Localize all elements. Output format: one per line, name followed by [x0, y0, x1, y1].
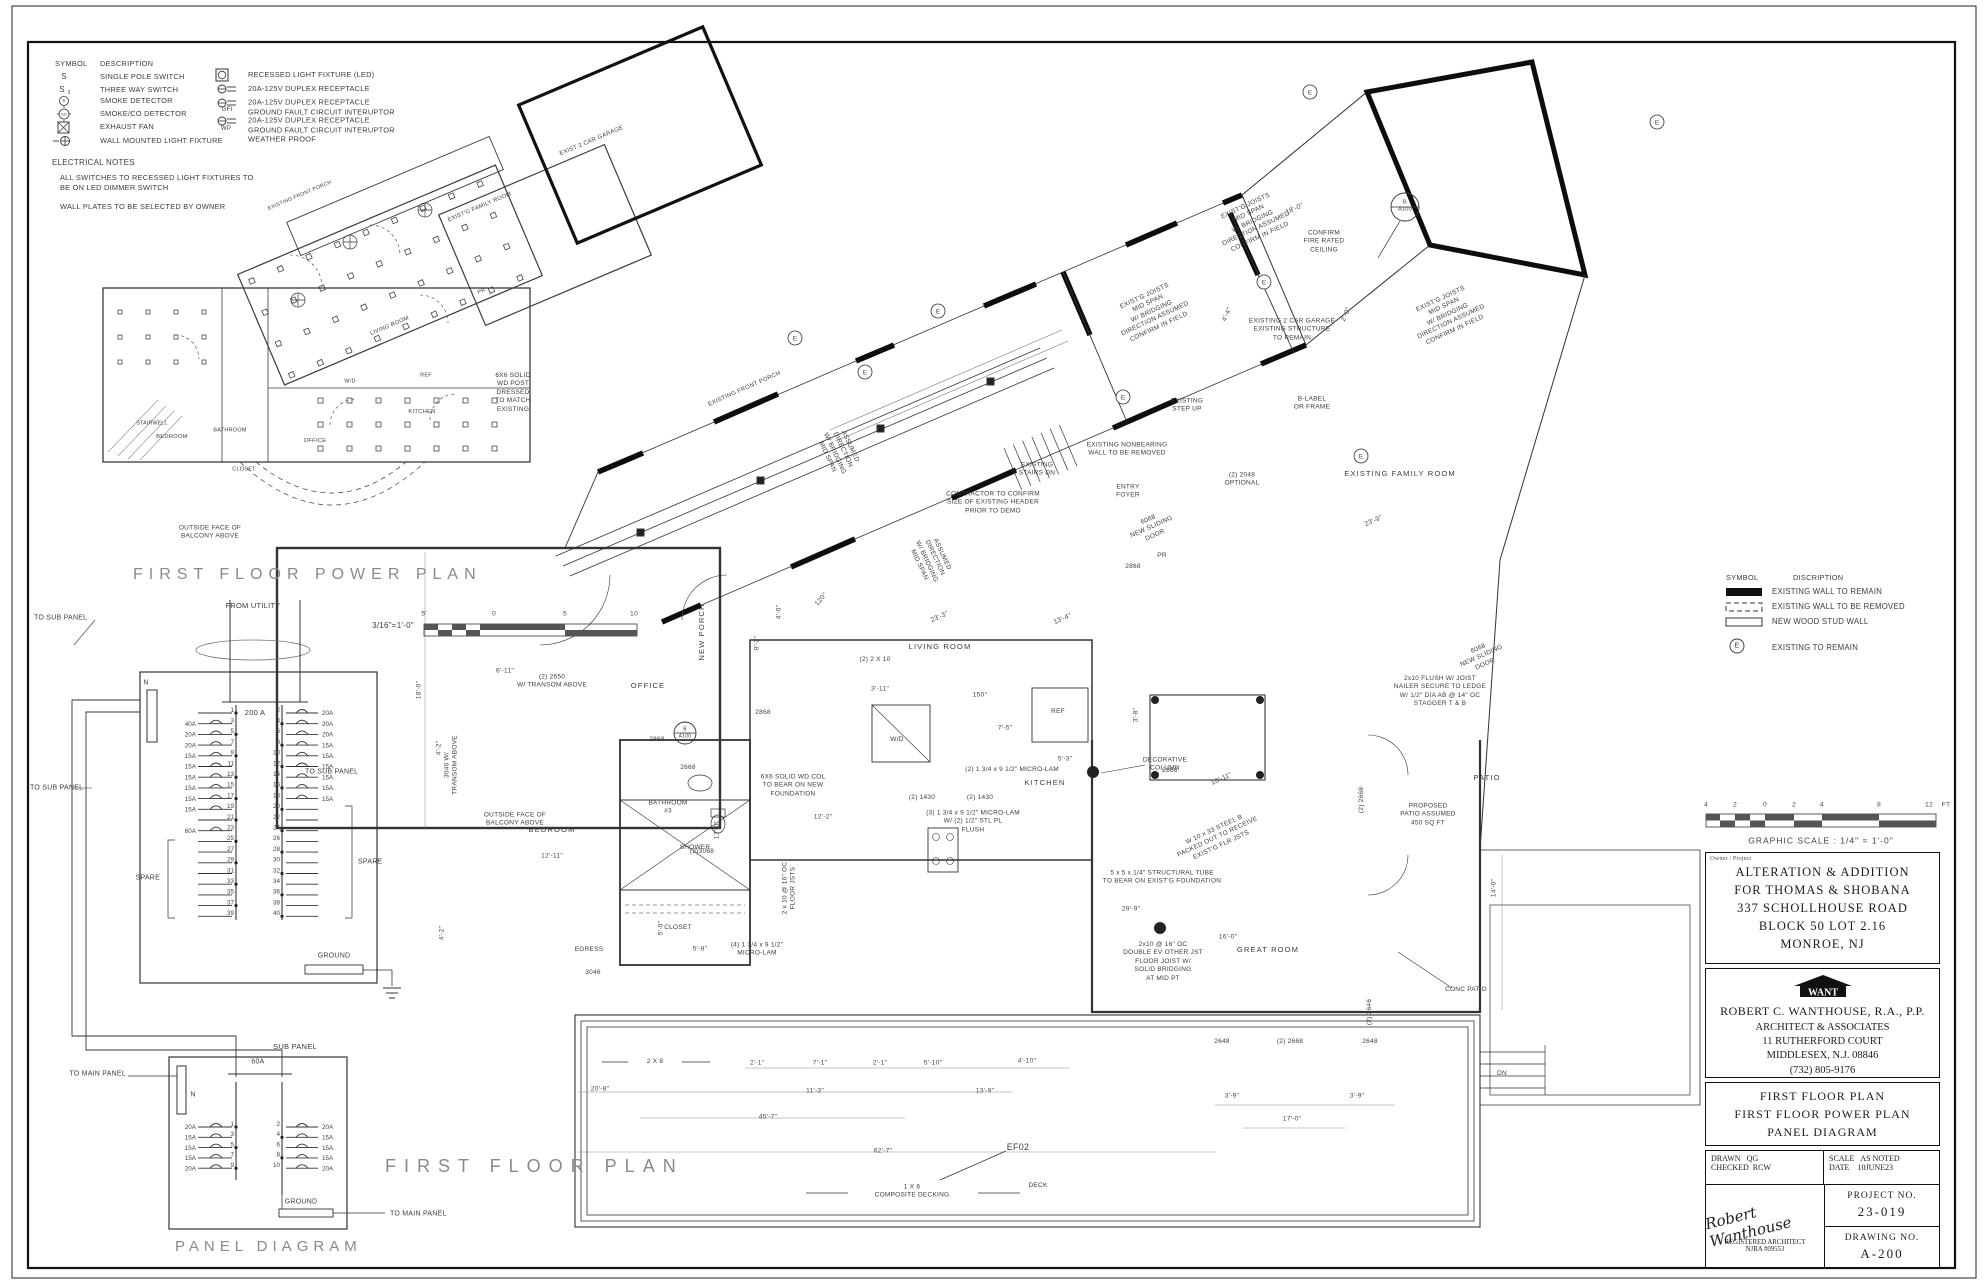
scale-tick: 5' [421, 611, 426, 620]
svg-text:15A: 15A [185, 753, 197, 760]
svg-text:4: 4 [276, 718, 280, 725]
note-label: 2x10 FLUSH W/ JOIST NAILER SECURE TO LED… [1394, 675, 1486, 709]
svg-text:17: 17 [227, 792, 235, 799]
gscale-tick: 0 [1763, 802, 1767, 811]
note-label: (3) 1 3/4 x 9 1/2" MICRO-LAM W/ (2) 1/2"… [926, 809, 1020, 834]
room-label: DECK [1028, 1182, 1047, 1190]
to-sub-panel-label: TO SUB PANEL [34, 613, 87, 622]
svg-text:39: 39 [227, 910, 235, 917]
svg-text:10: 10 [273, 1162, 281, 1169]
gscale-unit: FT [1942, 802, 1951, 811]
legend-item: WALL MOUNTED LIGHT FIXTURE [100, 136, 223, 146]
architect-address: ARCHITECT & ASSOCIATES 11 RUTHERFORD COU… [1706, 1021, 1939, 1078]
gscale-tick: 2 [1733, 802, 1737, 811]
svg-text:20A: 20A [322, 732, 334, 739]
switch-symbol: S [61, 72, 67, 82]
note-label: (2) 2048 OPTIONAL [1225, 472, 1260, 489]
svg-text:8: 8 [276, 1152, 280, 1159]
architect-logo-icon: WANT [1786, 973, 1860, 999]
sub-panel-label: SUB PANEL [273, 1042, 317, 1052]
room-label: GREAT ROOM [1237, 945, 1299, 955]
svg-text:21: 21 [227, 814, 235, 821]
note-label: EF02 [1007, 1142, 1030, 1154]
room-label: CLOSET [232, 466, 256, 473]
date-value: 10JUNE23 [1857, 1163, 1893, 1172]
neutral-label: N [190, 1090, 195, 1099]
svg-text:15A: 15A [185, 764, 197, 771]
wp-label: WP [221, 126, 231, 134]
tag-label: 2868 [755, 709, 770, 717]
svg-text:30: 30 [273, 857, 281, 864]
architect-name: ROBERT C. WANTHOUSE, R.A., P.P. [1706, 1004, 1939, 1019]
tag-label: (2)3068 [690, 848, 714, 856]
existing-symbol: E [1735, 641, 1740, 650]
note-label: 2 x 10 @ 16" OC FLOOR JSTS [782, 862, 799, 915]
dim-label: 4'-10" [1018, 1058, 1037, 1067]
electrical-notes-body: ALL SWITCHES TO RECESSED LIGHT FIXTURES … [60, 173, 254, 212]
svg-text:4: 4 [276, 1131, 280, 1138]
svg-text:38: 38 [273, 899, 281, 906]
svg-text:14: 14 [273, 771, 281, 778]
svg-text:20A: 20A [322, 721, 334, 728]
svg-text:19: 19 [227, 803, 235, 810]
dim-label: 2'-1" [873, 1060, 888, 1069]
power-plan-title: FIRST FLOOR POWER PLAN [133, 566, 482, 584]
dim-label: 150° [973, 692, 988, 701]
legend-header-description: DESCRIPTION [100, 59, 153, 69]
smoke-co-detector-symbol: SD [61, 111, 67, 116]
svg-text:15A: 15A [185, 807, 197, 814]
dim-label: 5'-10" [924, 1060, 943, 1069]
to-main-panel-label: TO MAIN PANEL [390, 1209, 447, 1218]
note-label: OUTSIDE FACE OF BALCONY ABOVE [179, 525, 241, 542]
svg-text:20A: 20A [322, 710, 334, 717]
wall-legend-header-desc: DISCRIPTION [1793, 573, 1843, 583]
dim-label: 7'-1" [813, 1060, 828, 1069]
wall-legend-item: EXISTING WALL TO REMAIN [1772, 587, 1882, 597]
scale-value: AS NOTED [1860, 1154, 1899, 1163]
room-label: STAIRWELL [136, 421, 167, 428]
legend-item: RECESSED LIGHT FIXTURE (LED) [248, 70, 374, 80]
drawing-sheet: 20A1240A20A3420A20A5620A15A7815A15A91015… [0, 0, 1988, 1285]
dim-label: 7'-5" [998, 725, 1013, 734]
svg-text:3: 3 [230, 718, 234, 725]
note-label: B-LABEL OR FRAME [1294, 396, 1330, 413]
drawn-label: DRAWN [1711, 1154, 1741, 1163]
scale-tick: 5 [563, 611, 567, 620]
svg-text:8: 8 [276, 739, 280, 746]
dim-label: 3'-8" [1133, 708, 1142, 723]
svg-text:13: 13 [227, 771, 235, 778]
room-label: CLOSET [664, 924, 692, 932]
note-label: EXISTING STEP UP [1171, 398, 1203, 415]
svg-text:20A: 20A [185, 742, 197, 749]
room-label: NEW PORCH [697, 603, 707, 660]
svg-text:40: 40 [273, 910, 281, 917]
svg-text:E: E [1655, 119, 1659, 126]
drawing-no-value: A-200 [1860, 1246, 1903, 1262]
to-sub-panel-label: TO SUB PANEL [30, 783, 83, 792]
checked-value: RCW [1753, 1163, 1771, 1172]
svg-text:18: 18 [273, 792, 281, 799]
room-label: BEDROOM [156, 434, 188, 442]
dim-label: 3'-11" [871, 686, 889, 695]
scale-tick: 10 [630, 611, 638, 620]
tag-label: (2) 1430 [909, 794, 935, 802]
tag-label: 2668 [680, 764, 695, 772]
svg-text:15A: 15A [322, 742, 334, 749]
svg-text:15A: 15A [322, 1135, 334, 1142]
svg-text:15A: 15A [322, 1145, 334, 1152]
svg-text:31: 31 [227, 867, 235, 874]
legend-item: 20A-125V DUPLEX RECEPTACLE [248, 84, 370, 94]
svg-text:20A: 20A [185, 732, 197, 739]
date-label: DATE [1829, 1163, 1849, 1172]
svg-text:20A: 20A [322, 1165, 334, 1172]
svg-text:9: 9 [230, 750, 234, 757]
svg-text:1: 1 [230, 1121, 234, 1128]
svg-text:32: 32 [273, 867, 281, 874]
svg-text:7: 7 [230, 739, 234, 746]
dim-label: 16'-0" [1219, 934, 1238, 943]
note-label: OUTSIDE FACE OF BALCONY ABOVE [484, 812, 546, 829]
svg-text:15A: 15A [322, 785, 334, 792]
dim-label: 3'-9" [1350, 1093, 1365, 1102]
svg-text:29: 29 [227, 857, 235, 864]
titleblock-architect: WANT ROBERT C. WANTHOUSE, R.A., P.P. ARC… [1705, 968, 1940, 1078]
gscale-tick: 12 [1925, 802, 1933, 811]
tag-label: 3046 W/ TRANSOM ABOVE [444, 735, 461, 795]
wall-legend-item: EXISTING TO REMAIN [1772, 643, 1858, 653]
project-no-value: 23-019 [1858, 1204, 1907, 1220]
svg-text:6: 6 [276, 728, 280, 735]
svg-text:34: 34 [273, 878, 281, 885]
titleblock-sheet-title: FIRST FLOOR PLAN FIRST FLOOR POWER PLAN … [1705, 1082, 1940, 1146]
room-label: REF [420, 372, 432, 379]
note-label: CONC PATIO [1445, 986, 1487, 994]
svg-text:WANT: WANT [1807, 988, 1837, 999]
dim-label: 5'-0" [658, 921, 667, 936]
titleblock-owner: Owner / Project ALTERATION & ADDITION FO… [1705, 852, 1940, 964]
panel-diagram-title: PANEL DIAGRAM [175, 1238, 362, 1255]
sub-breaker-label: 60A [251, 1057, 264, 1066]
svg-text:6: 6 [276, 1141, 280, 1148]
tag-label: 2868 [1125, 563, 1140, 571]
scale-tick: 0 [492, 611, 496, 620]
room-label: BATHROOM [213, 427, 246, 434]
svg-text:35: 35 [227, 889, 235, 896]
callout-label: B A100 [679, 727, 692, 740]
room-label: PATIO [1473, 773, 1500, 783]
svg-text:20A: 20A [185, 1165, 197, 1172]
three-way-switch-symbol: S [59, 85, 65, 95]
svg-text:5: 5 [230, 1141, 234, 1148]
tag-label: (2) 2668 [1358, 787, 1366, 813]
electrical-notes-title: ELECTRICAL NOTES [52, 158, 135, 168]
note-label: CONTRACTOR TO CONFIRM SIZE OF EXISTING H… [946, 490, 1040, 515]
legend-item: 20A-125V DUPLEX RECEPTACLE GROUND FAULT … [248, 97, 395, 116]
svg-text:15A: 15A [322, 1155, 334, 1162]
note-label: (2) 1 3/4 x 9 1/2" MICRO-LAM [965, 766, 1059, 774]
tag-label: 2648 [1214, 1038, 1229, 1046]
svg-text:E: E [1121, 394, 1125, 401]
tag-label: 3046 [585, 969, 600, 977]
legend-item: THREE WAY SWITCH [100, 85, 178, 95]
spare-label: SPARE [358, 857, 382, 866]
legend-item: 20A-125V DUPLEX RECEPTACLE GROUND FAULT … [248, 116, 395, 145]
room-label: EXISTING FAMILY ROOM [1344, 469, 1456, 479]
svg-text:20: 20 [273, 803, 281, 810]
drawn-value: QG [1747, 1154, 1759, 1163]
callout-label: B A100 [1398, 200, 1412, 215]
svg-text:E: E [793, 335, 797, 342]
svg-text:40A: 40A [185, 721, 197, 728]
dim-label: 18'-0" [416, 681, 425, 700]
svg-text:27: 27 [227, 846, 235, 853]
legend-item: EXHAUST FAN [100, 122, 154, 132]
from-utility-label: FROM UTILITY [225, 601, 280, 611]
gscale-tick: 8 [1877, 802, 1881, 811]
floor-plan-title: FIRST FLOOR PLAN [385, 1156, 684, 1177]
gscale-label: GRAPHIC SCALE : 1/4" = 1'-0" [1748, 835, 1894, 846]
note-label: 1 X 6 COMPOSITE DECKING [875, 1184, 950, 1201]
note-label: 2x10 @ 16" OC DOUBLE EV OTHER JST FLOOR … [1123, 941, 1203, 983]
gscale-tick: 2 [1792, 802, 1796, 811]
svg-text:15A: 15A [185, 1145, 197, 1152]
room-label: KITCHEN [1024, 778, 1065, 788]
svg-text:E: E [1262, 279, 1266, 286]
note-label: PROPOSED PATIO ASSUMED 450 SQ FT [1400, 802, 1455, 827]
dim-label: 5'-3" [1058, 756, 1073, 765]
dim-label: 17'-0" [1283, 1116, 1302, 1125]
project-info: ALTERATION & ADDITION FOR THOMAS & SHOBA… [1706, 853, 1939, 963]
svg-text:20A: 20A [185, 1124, 197, 1131]
svg-text:28: 28 [273, 846, 281, 853]
svg-text:26: 26 [273, 835, 281, 842]
svg-text:20A: 20A [322, 1124, 334, 1131]
svg-text:7: 7 [230, 1152, 234, 1159]
dim-label: 17'-0" [714, 821, 723, 840]
tag-label: 2868 [1162, 767, 1177, 775]
svg-text:12: 12 [273, 760, 281, 767]
sheet-title: FIRST FLOOR PLAN FIRST FLOOR POWER PLAN … [1706, 1083, 1939, 1145]
svg-text:15A: 15A [185, 1135, 197, 1142]
room-label: W/D [344, 378, 355, 385]
svg-text:15A: 15A [322, 796, 334, 803]
note-label: (2) 2 X 10 [859, 656, 890, 664]
svg-text:5: 5 [230, 728, 234, 735]
note-label: 5 x 5 x 1/4" STRUCTURAL TUBE TO BEAR ON … [1103, 870, 1221, 887]
drawing-no-label: DRAWING NO. [1845, 1233, 1920, 1243]
svg-text:15A: 15A [322, 753, 334, 760]
dim-label: 12'-11" [541, 853, 563, 862]
owner-project-label: Owner / Project [1710, 855, 1751, 862]
legend-item: SMOKE DETECTOR [100, 96, 173, 106]
ground-label: GROUND [318, 951, 351, 960]
svg-text:1: 1 [230, 707, 234, 714]
wall-legend-item: NEW WOOD STUD WALL [1772, 617, 1868, 627]
legend-item: SINGLE POLE SWITCH [100, 72, 185, 82]
svg-text:16: 16 [273, 782, 281, 789]
svg-text:E: E [936, 308, 940, 315]
dim-label: 2'-1" [750, 1060, 765, 1069]
svg-text:2: 2 [276, 1121, 280, 1128]
gfi-label: GFI [222, 107, 233, 115]
dim-label: 62'-7" [874, 1148, 893, 1157]
svg-text:60A: 60A [185, 828, 197, 835]
dim-label: 8'-2" [754, 636, 763, 651]
gscale-tick: 4 [1820, 802, 1824, 811]
svg-text:15A: 15A [185, 796, 197, 803]
tag-label: (2) 2668 [1277, 1038, 1303, 1046]
dim-label: 6'-11" [496, 668, 514, 677]
svg-text:2: 2 [276, 707, 280, 714]
tag-label: 2648 [1362, 1038, 1377, 1046]
svg-text:15A: 15A [185, 785, 197, 792]
svg-text:36: 36 [273, 889, 281, 896]
dim-label: 3'-9" [1225, 1093, 1240, 1102]
three-way-switch-sub: 3 [67, 90, 70, 97]
tag-label: 2868 [649, 736, 664, 744]
gscale-tick: 4 [1704, 802, 1708, 811]
room-label: EXISTING 2 CAR GARAGE EXISTING STRUCTURE… [1249, 317, 1335, 342]
note-label: (4) 1 3/4 x 9 1/2" MICRO-LAM [731, 942, 783, 959]
tag-label: (2) 2650 W/ TRANSOM ABOVE [517, 674, 587, 691]
room-label: REF [1051, 708, 1065, 716]
svg-text:15A: 15A [185, 1155, 197, 1162]
svg-text:25: 25 [227, 835, 235, 842]
svg-text:10: 10 [273, 750, 281, 757]
svg-text:15A: 15A [185, 774, 197, 781]
svg-text:E: E [863, 369, 867, 376]
room-label: ENTRY FOYER [1116, 484, 1140, 501]
dim-label: 29'-9" [1122, 906, 1141, 915]
dim-label: 20'-8" [591, 1086, 610, 1095]
note-label: EXISTING NONBEARING WALL TO BE REMOVED [1087, 442, 1168, 459]
note-label: EXISTING STAIRS DN [1019, 462, 1055, 479]
room-label: OFFICE [631, 681, 665, 691]
room-label: DN [1497, 1070, 1507, 1078]
dim-label: 12'-2" [814, 814, 833, 823]
room-label: OFFICE [304, 438, 327, 446]
svg-text:37: 37 [227, 899, 235, 906]
wall-legend-header-symbol: SYMBOL [1726, 573, 1758, 583]
note-label: CONFIRM FIRE RATED CEILING [1304, 229, 1345, 254]
spare-label: SPARE [136, 873, 160, 882]
wall-legend-item: EXISTING WALL TO BE REMOVED [1772, 602, 1905, 612]
main-breaker-label: 200 A [245, 708, 265, 718]
project-no-label: PROJECT NO. [1847, 1191, 1916, 1201]
svg-text:E: E [1359, 453, 1363, 460]
room-label: W/D [890, 736, 903, 744]
legend-header-symbol: SYMBOL [55, 59, 87, 69]
tag-label: (2) 1430 [967, 794, 993, 802]
svg-text:11: 11 [227, 760, 234, 767]
room-label: PR [1157, 552, 1167, 560]
svg-text:23: 23 [227, 825, 235, 832]
svg-text:33: 33 [227, 878, 235, 885]
neutral-label: N [143, 678, 148, 687]
dim-label: 4'-0" [776, 605, 785, 620]
room-label: LIVING ROOM [909, 642, 972, 652]
svg-text:3: 3 [230, 1131, 234, 1138]
svg-text:E: E [1308, 89, 1312, 96]
note-label: 2 X 8 [647, 1058, 663, 1066]
svg-text:9: 9 [230, 1162, 234, 1169]
legend-item: SMOKE/CO DETECTOR [100, 109, 187, 119]
dim-label: 5'-8" [693, 946, 708, 955]
to-main-panel-label: TO MAIN PANEL [69, 1069, 126, 1078]
room-label: BATHROOM #3 [648, 800, 687, 817]
power-plan-scale: 3/16"=1'-0" [372, 621, 414, 631]
dim-label: 4'-2" [439, 926, 448, 941]
svg-text:15: 15 [227, 782, 235, 789]
room-label: KITCHEN [408, 409, 435, 417]
ground-label: GROUND [285, 1197, 318, 1206]
to-sub-panel-label: TO SUB PANEL [305, 767, 358, 776]
scale-label: SCALE [1829, 1154, 1854, 1163]
smoke-detector-symbol: S [62, 98, 65, 104]
note-label: 6X6 SOLID WD POST DRESSED TO MATCH EXIST… [495, 372, 530, 414]
titleblock-info: DRAWN QG CHECKED RCW SCALE AS NOTED DATE… [1705, 1150, 1940, 1268]
dim-label: 13'-9" [976, 1088, 995, 1097]
dim-label: 11'-3" [806, 1088, 824, 1097]
note-label: 6X6 SOLID WD COL TO BEAR ON NEW FOUNDATI… [761, 773, 826, 798]
tag-label: (2) 2646 [1366, 999, 1374, 1025]
dim-label: 45'-7" [759, 1114, 778, 1123]
svg-text:22: 22 [273, 814, 281, 821]
checked-label: CHECKED [1711, 1163, 1749, 1172]
dim-label: 14'-0" [1491, 879, 1500, 898]
svg-text:24: 24 [273, 825, 281, 832]
room-label: EGRESS [575, 946, 604, 954]
